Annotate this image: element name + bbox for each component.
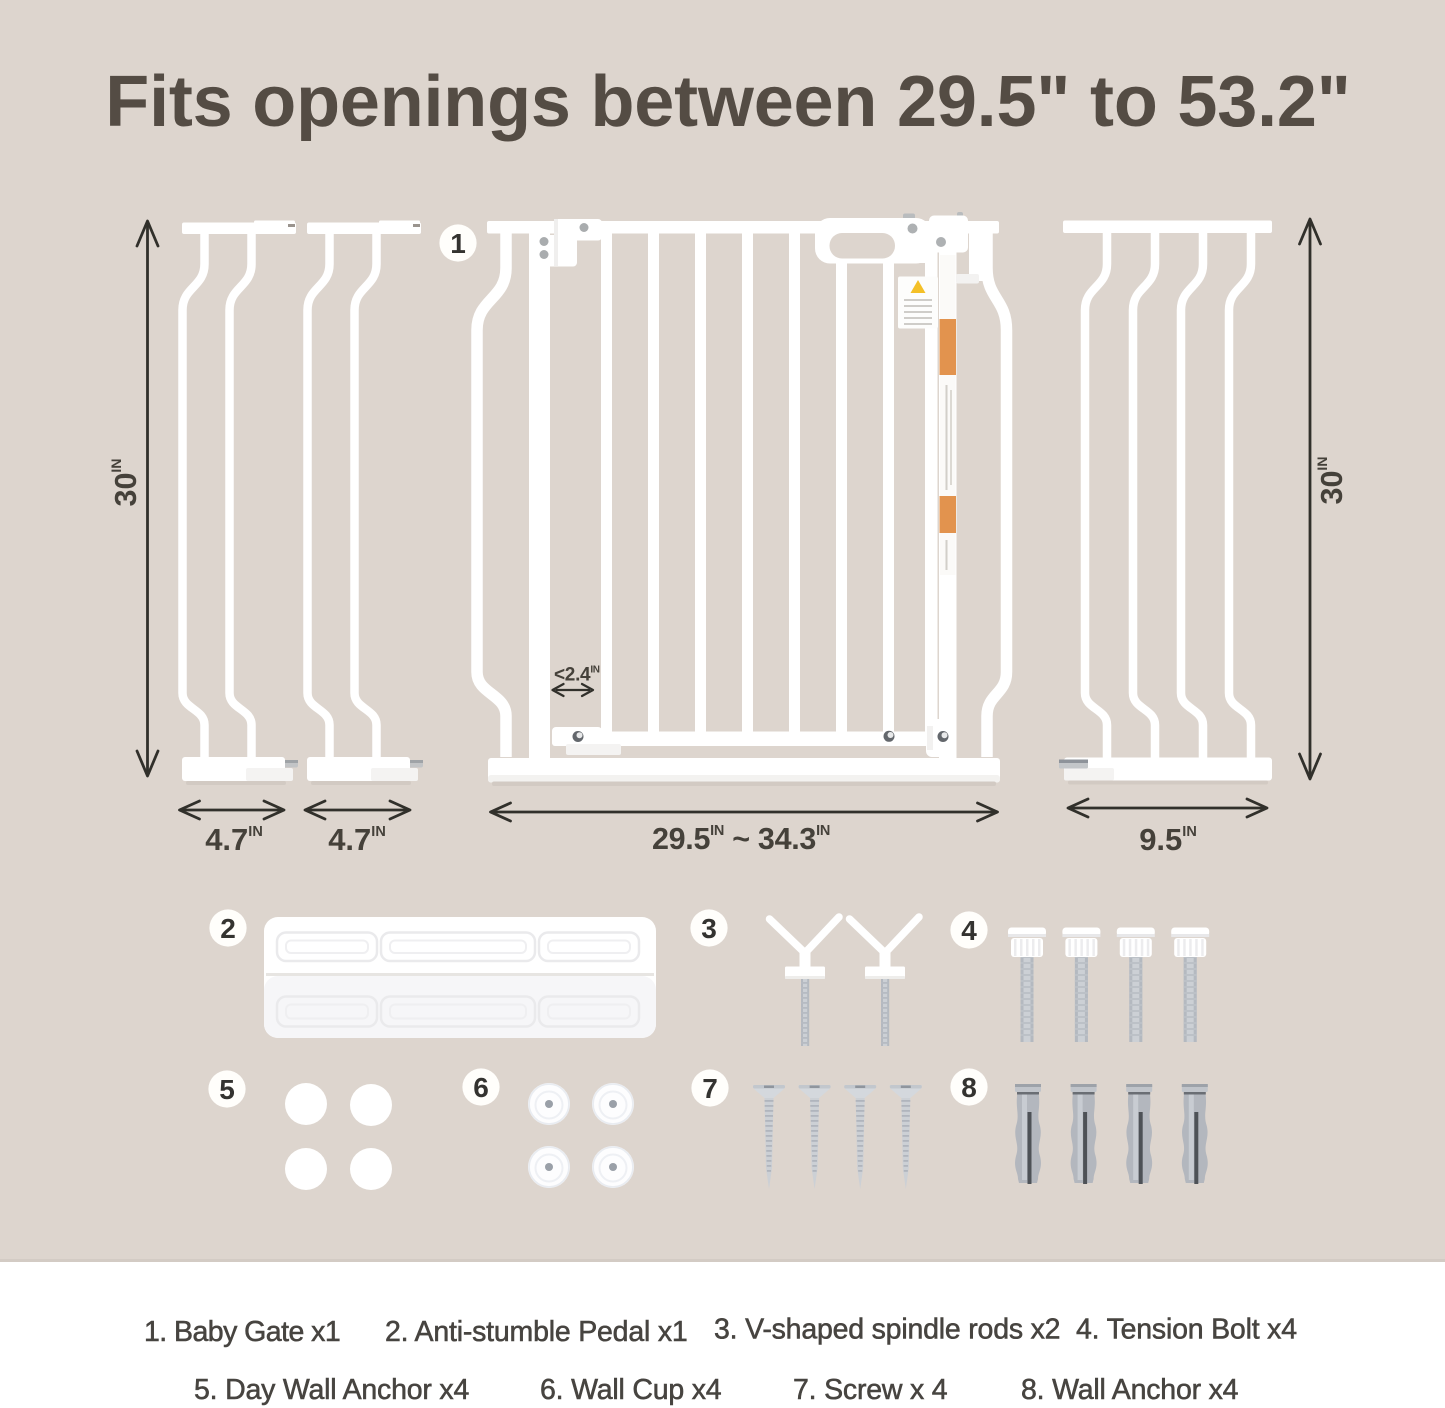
svg-text:2: 2	[220, 913, 236, 944]
svg-text:7. Screw x 4: 7. Screw x 4	[793, 1374, 948, 1406]
svg-text:3: 3	[701, 913, 717, 944]
svg-text:4: 4	[961, 915, 977, 946]
svg-text:5. Day Wall Anchor x4: 5. Day Wall Anchor x4	[194, 1374, 469, 1406]
svg-text:29.5IN ~ 34.3IN: 29.5IN ~ 34.3IN	[652, 822, 830, 856]
svg-text:4. Tension Bolt x4: 4. Tension Bolt x4	[1076, 1314, 1297, 1346]
svg-text:8: 8	[961, 1072, 977, 1103]
svg-text:3. V-shaped spindle rods x2: 3. V-shaped spindle rods x2	[714, 1314, 1060, 1346]
svg-text:2. Anti-stumble Pedal x1: 2. Anti-stumble Pedal x1	[385, 1316, 688, 1348]
svg-text:5: 5	[219, 1074, 235, 1105]
svg-text:6: 6	[473, 1072, 489, 1103]
svg-text:1: 1	[450, 228, 466, 259]
svg-text:Fits openings between 29.5" to: Fits openings between 29.5" to 53.2"	[105, 62, 1350, 142]
svg-text:6. Wall Cup x4: 6. Wall Cup x4	[540, 1374, 722, 1406]
svg-text:1. Baby Gate x1: 1. Baby Gate x1	[144, 1316, 340, 1348]
svg-text:8. Wall Anchor x4: 8. Wall Anchor x4	[1021, 1374, 1239, 1406]
svg-text:7: 7	[702, 1073, 718, 1104]
